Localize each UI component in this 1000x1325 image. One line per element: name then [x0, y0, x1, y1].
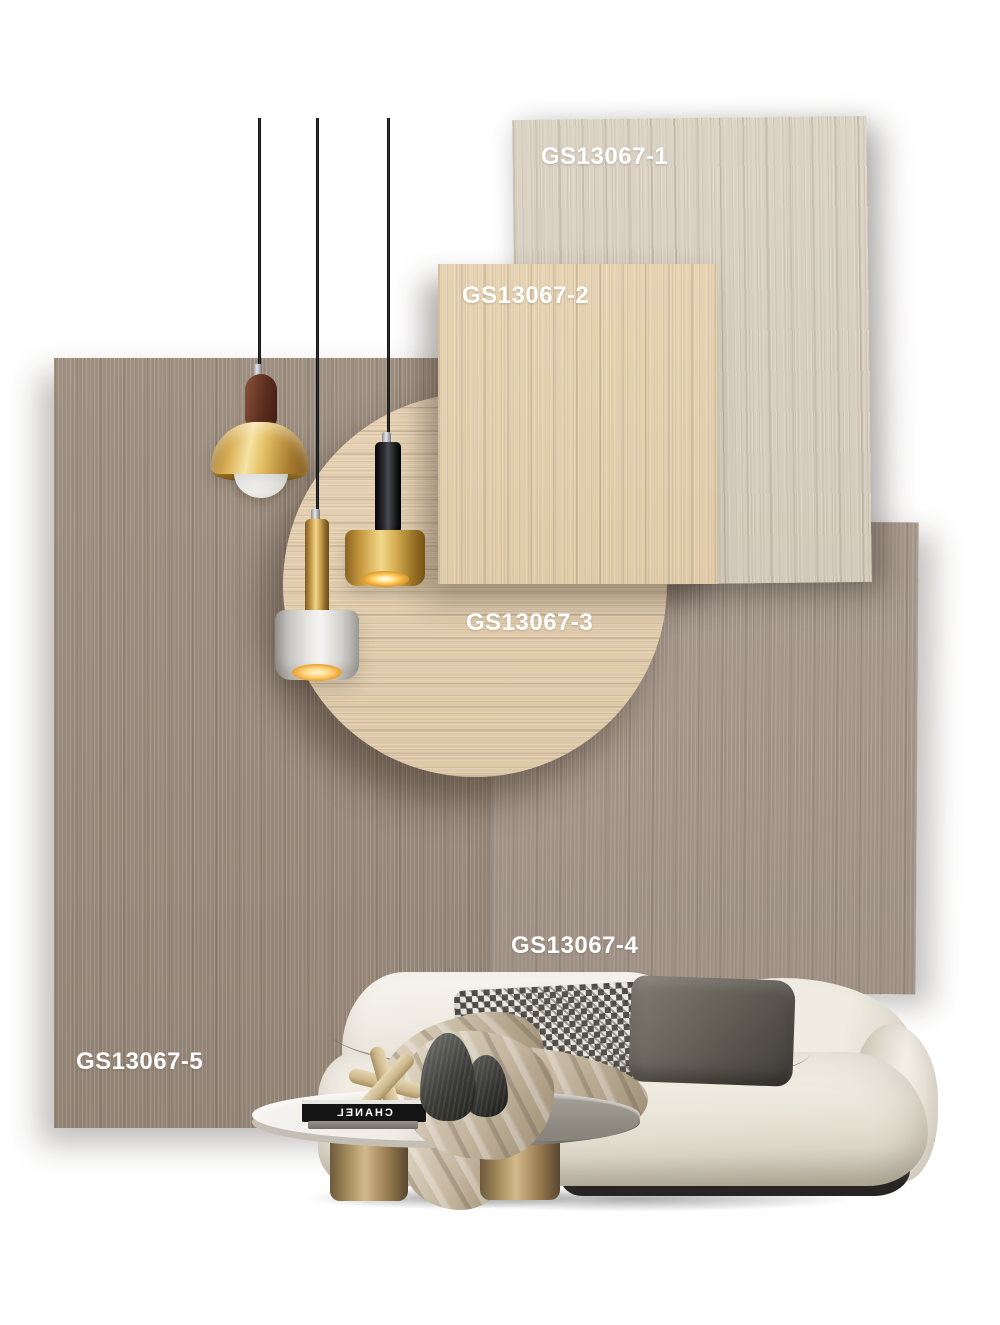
lamp-cord — [258, 118, 261, 371]
dark-grey-pillow — [628, 975, 796, 1087]
swatch-label-5: GS13067-5 — [76, 1048, 203, 1076]
swatch-label-2: GS13067-2 — [462, 282, 589, 310]
wood-swatch-panel-2 — [438, 264, 718, 584]
swatch-label-4: GS13067-4 — [511, 932, 638, 960]
oval-coffee-table: CHANEL — [252, 1083, 642, 1223]
chanel-book: CHANEL — [302, 1100, 426, 1122]
swatch-label-3: GS13067-3 — [466, 609, 593, 637]
book-title-mirrored: CHANEL — [335, 1107, 393, 1119]
swatch-label-1: GS13067-1 — [541, 143, 668, 171]
product-poster: GS13067-1 GS13067-2 GS13067-3 GS13067-4 … — [0, 0, 1000, 1325]
book-stack — [308, 1121, 418, 1129]
